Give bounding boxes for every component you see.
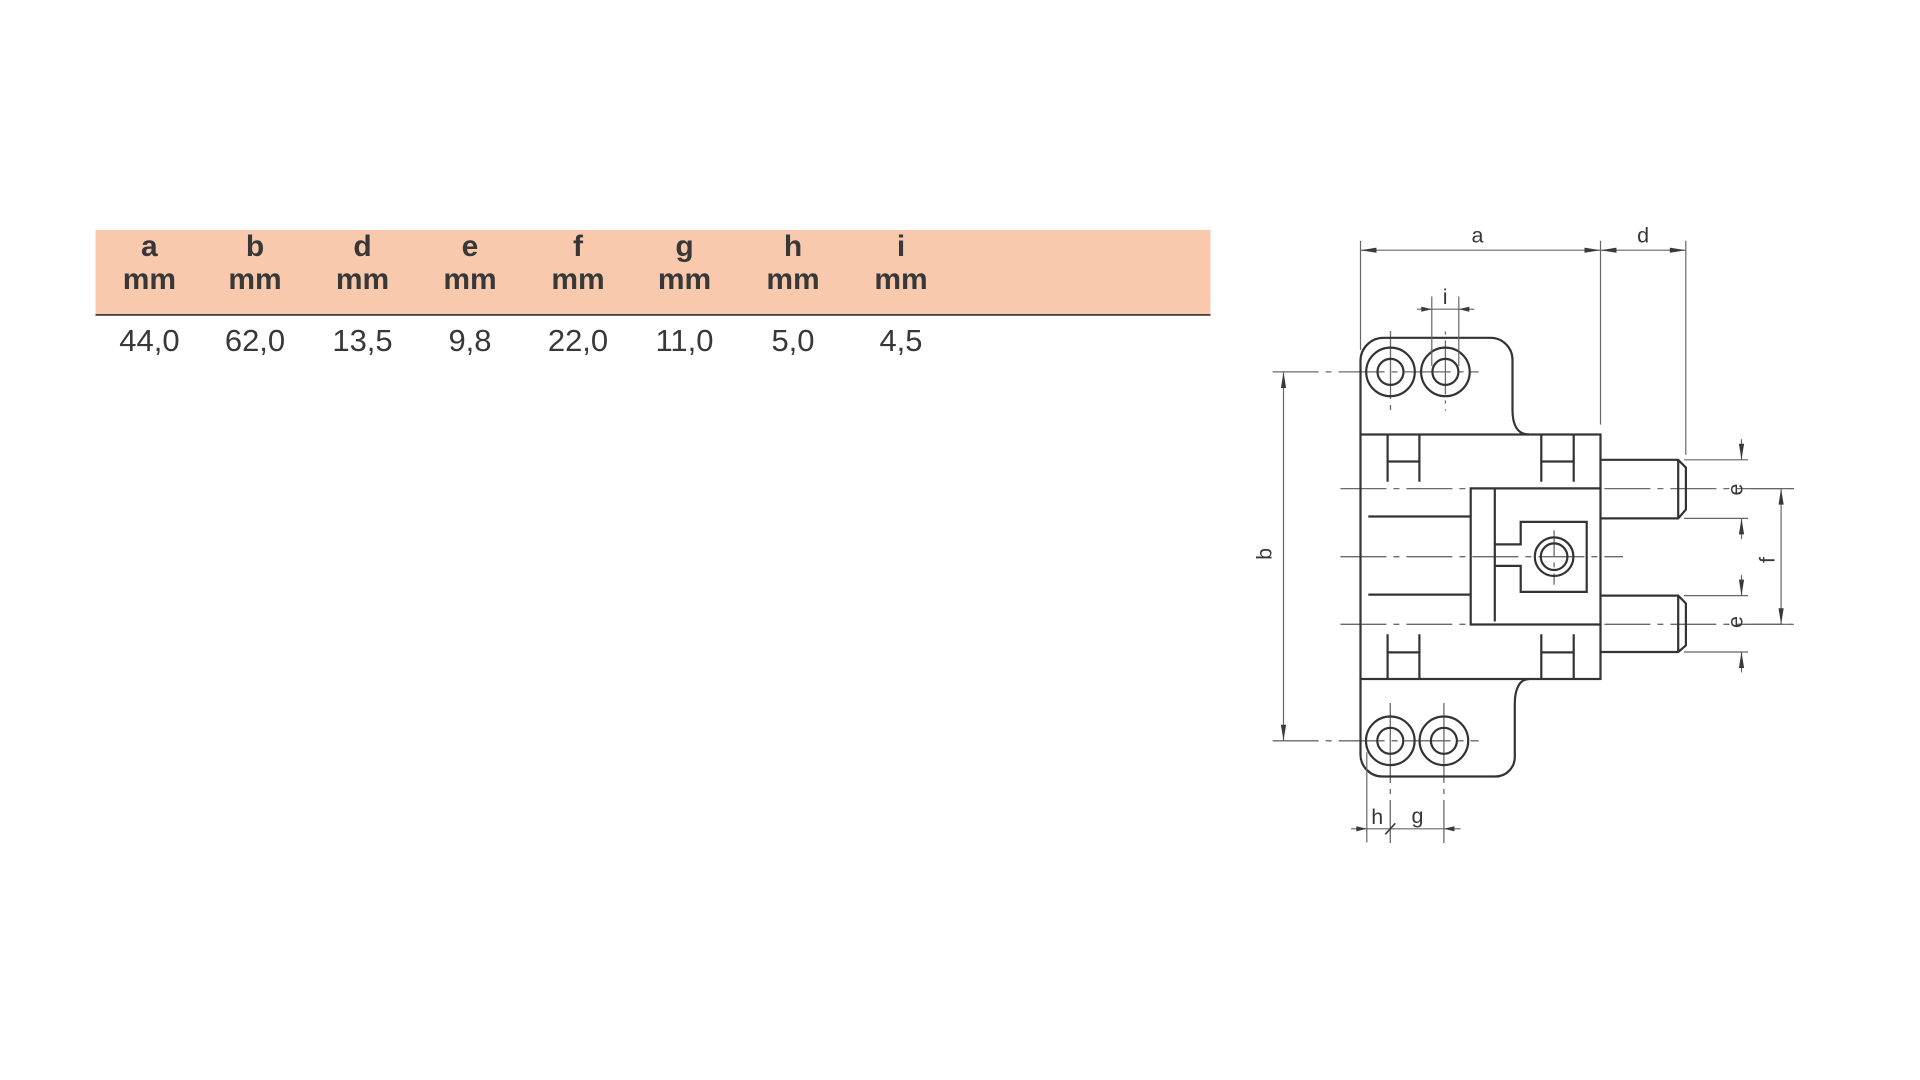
svg-text:b: b [1253,548,1277,560]
svg-text:a: a [1472,224,1484,248]
svg-text:d: d [353,230,371,263]
svg-text:i: i [1443,285,1448,309]
svg-text:g: g [675,230,693,263]
svg-text:mm: mm [658,263,711,296]
svg-text:e: e [462,230,479,263]
svg-text:62,0: 62,0 [225,323,285,358]
svg-text:mm: mm [336,263,389,296]
svg-text:44,0: 44,0 [119,323,179,358]
svg-text:mm: mm [551,263,604,296]
svg-text:11,0: 11,0 [655,323,713,358]
svg-text:e: e [1723,484,1747,496]
svg-text:g: g [1412,804,1424,828]
svg-text:d: d [1637,224,1649,248]
svg-text:f: f [1756,557,1780,563]
svg-text:13,5: 13,5 [332,323,392,358]
svg-text:mm: mm [228,263,281,296]
svg-text:mm: mm [766,263,819,296]
svg-text:b: b [246,230,264,263]
svg-text:5,0: 5,0 [771,323,814,358]
svg-text:mm: mm [443,263,496,296]
svg-text:a: a [141,230,158,263]
svg-text:mm: mm [123,263,176,296]
svg-text:9,8: 9,8 [448,323,491,358]
svg-text:e: e [1723,616,1747,628]
svg-text:22,0: 22,0 [548,323,608,358]
svg-text:i: i [897,230,905,263]
svg-text:mm: mm [874,263,927,296]
svg-text:f: f [573,230,584,263]
svg-text:h: h [784,230,802,263]
svg-text:4,5: 4,5 [879,323,922,358]
svg-text:h: h [1371,805,1383,829]
